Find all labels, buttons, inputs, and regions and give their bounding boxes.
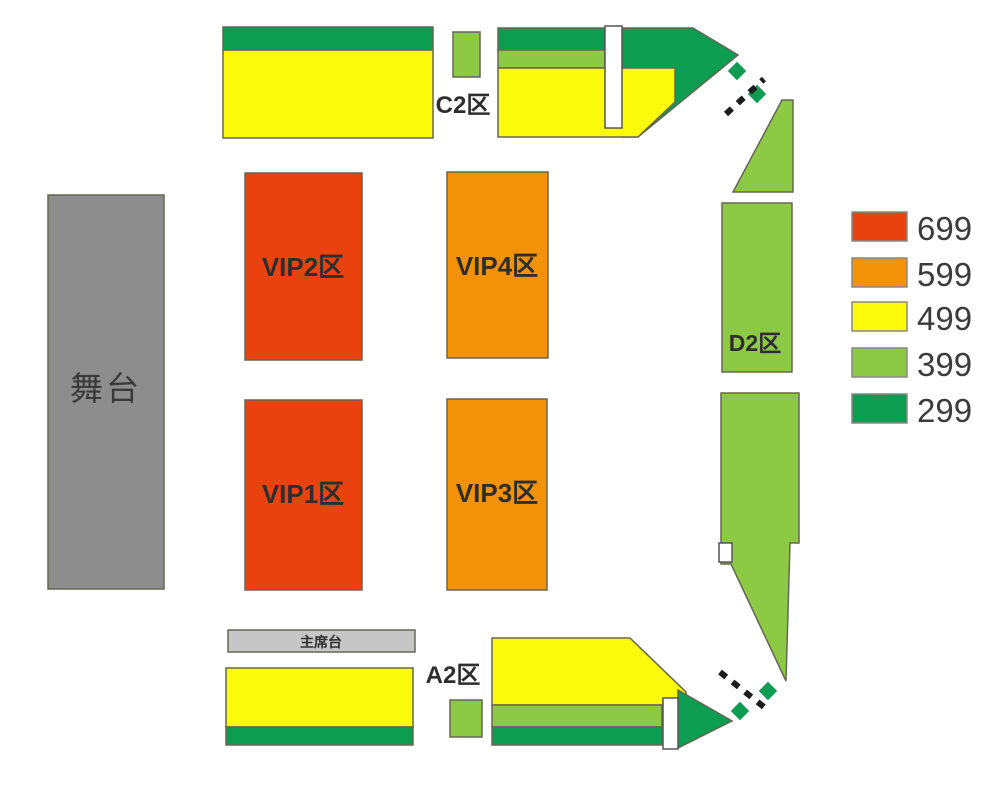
- legend-item: 299: [852, 392, 972, 429]
- bottom-left-499-area[interactable]: [226, 668, 413, 727]
- bottom-right-399-strip[interactable]: [492, 705, 662, 727]
- section-top-right: [498, 26, 738, 137]
- bottom-right-299-strip[interactable]: [492, 727, 662, 745]
- bottom-right-aisle-slot: [663, 698, 678, 749]
- legend-item: 599: [852, 256, 972, 293]
- legend-item: 499: [852, 300, 972, 337]
- vip2-label: VIP2区: [262, 252, 344, 282]
- gate-diamond: [731, 702, 749, 720]
- seating-map: 舞台 C2区 D2区 主席台 A2区: [0, 0, 998, 787]
- section-d2: D2区: [722, 203, 792, 372]
- top-right-299-strip[interactable]: [498, 28, 605, 50]
- section-a2-connector[interactable]: [450, 700, 482, 737]
- section-vip3: VIP3区: [447, 399, 547, 590]
- c2-label: C2区: [436, 92, 491, 119]
- top-right-aisle-slot: [605, 26, 622, 128]
- stage-label: 舞台: [70, 370, 142, 407]
- bottom-right-299-arrow[interactable]: [678, 690, 732, 748]
- section-bottom-right: [492, 638, 732, 749]
- gate-dashed-line: [720, 672, 764, 707]
- legend-swatch-399: [852, 348, 907, 377]
- legend-swatch-499: [852, 302, 907, 331]
- legend-price-499: 499: [917, 300, 972, 337]
- bottom-left-299-strip[interactable]: [226, 727, 413, 745]
- section-d-lower: [719, 393, 799, 681]
- top-left-299-strip[interactable]: [223, 27, 433, 50]
- gate-diamond: [728, 62, 746, 80]
- top-right-399-strip[interactable]: [498, 50, 605, 68]
- legend-price-399: 399: [917, 346, 972, 383]
- price-legend: 699 599 499 399 299: [852, 210, 972, 429]
- section-top-left: [223, 27, 433, 138]
- a2-label: A2区: [426, 662, 481, 689]
- section-d-upper-wedge[interactable]: [733, 100, 793, 192]
- section-c2-connector[interactable]: [453, 32, 480, 77]
- section-bottom-left: 主席台: [226, 630, 415, 745]
- legend-price-699: 699: [917, 210, 972, 247]
- d2-label: D2区: [729, 330, 781, 356]
- vip1-label: VIP1区: [262, 479, 344, 509]
- legend-price-299: 299: [917, 392, 972, 429]
- d-lower-aisle-slot: [719, 543, 732, 562]
- legend-item: 699: [852, 210, 972, 247]
- legend-item: 399: [852, 346, 972, 383]
- legend-swatch-599: [852, 258, 907, 287]
- stage: 舞台: [48, 195, 164, 589]
- gate-diamond: [759, 682, 777, 700]
- section-vip4: VIP4区: [447, 172, 548, 358]
- top-left-499-area[interactable]: [223, 50, 433, 138]
- corner-gate-top-right: [726, 62, 766, 114]
- bottom-right-499-area[interactable]: [492, 638, 686, 705]
- legend-swatch-299: [852, 394, 907, 423]
- legend-price-599: 599: [917, 256, 972, 293]
- legend-swatch-699: [852, 212, 907, 241]
- section-vip1: VIP1区: [245, 400, 362, 590]
- section-vip2: VIP2区: [245, 173, 362, 360]
- corner-gate-bottom-right: [720, 672, 777, 720]
- top-right-499-area[interactable]: [498, 68, 675, 137]
- vip4-label: VIP4区: [456, 251, 538, 281]
- podium-label: 主席台: [300, 634, 342, 650]
- d-lower-area[interactable]: [721, 393, 799, 681]
- vip3-label: VIP3区: [456, 478, 538, 508]
